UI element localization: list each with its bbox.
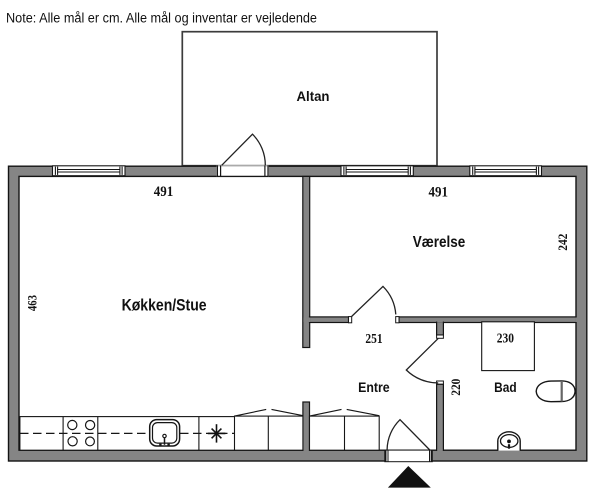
svg-text:491: 491 xyxy=(428,184,448,200)
svg-text:Entre: Entre xyxy=(358,380,390,395)
svg-text:Bad: Bad xyxy=(494,380,517,395)
svg-text:Note: Alle mål er cm. Alle mål: Note: Alle mål er cm. Alle mål og invent… xyxy=(6,11,317,26)
svg-text:463: 463 xyxy=(26,295,40,311)
svg-text:242: 242 xyxy=(555,234,570,251)
svg-text:Værelse: Værelse xyxy=(413,234,466,251)
svg-text:230: 230 xyxy=(497,332,514,347)
svg-text:251: 251 xyxy=(365,332,382,347)
svg-text:491: 491 xyxy=(154,184,174,200)
svg-text:220: 220 xyxy=(448,379,463,396)
svg-text:Altan: Altan xyxy=(297,89,330,104)
svg-text:Køkken/Stue: Køkken/Stue xyxy=(122,296,207,314)
